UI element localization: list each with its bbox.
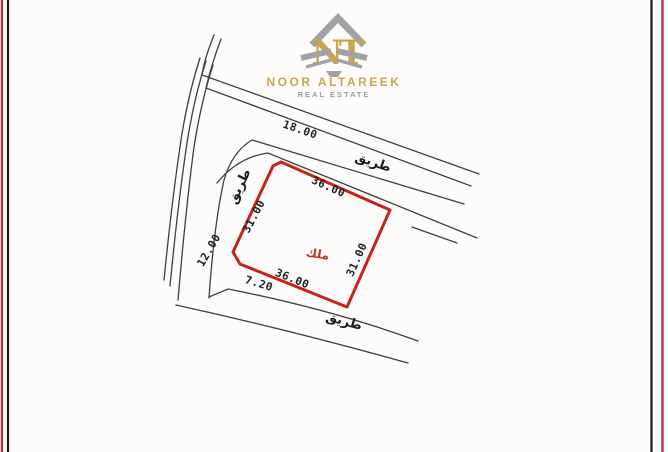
dimension-plot-right: 31.00: [344, 241, 370, 279]
brand-name: NOOR ALTAREEK: [267, 75, 402, 89]
dimension-plot-bottom: 36.00: [273, 266, 311, 291]
road-line: [164, 58, 200, 280]
plot-owner-label: ملك: [305, 245, 330, 263]
road-line: [176, 305, 408, 363]
brand-logo: NT NOOR ALTAREEK REAL ESTATE: [267, 18, 402, 99]
dimension-plot-left: 31.00: [240, 198, 268, 236]
brand-tagline: REAL ESTATE: [298, 90, 371, 99]
listing-image: NT NOOR ALTAREEK REAL ESTATE: [0, 0, 668, 452]
road-label-left: طريق: [225, 167, 254, 207]
dimension-left-road: 12.00: [194, 232, 223, 269]
road-label-bottom: طريق: [324, 309, 364, 334]
plan-labels: 18.00 طريق 36.00 طريق 31.00 12.00 ملك 31…: [194, 118, 393, 334]
road-line: [412, 227, 457, 243]
site-plan-canvas: NT NOOR ALTAREEK REAL ESTATE: [0, 0, 668, 452]
dimension-top-road: 18.00: [281, 118, 319, 142]
road-line: [209, 289, 418, 341]
